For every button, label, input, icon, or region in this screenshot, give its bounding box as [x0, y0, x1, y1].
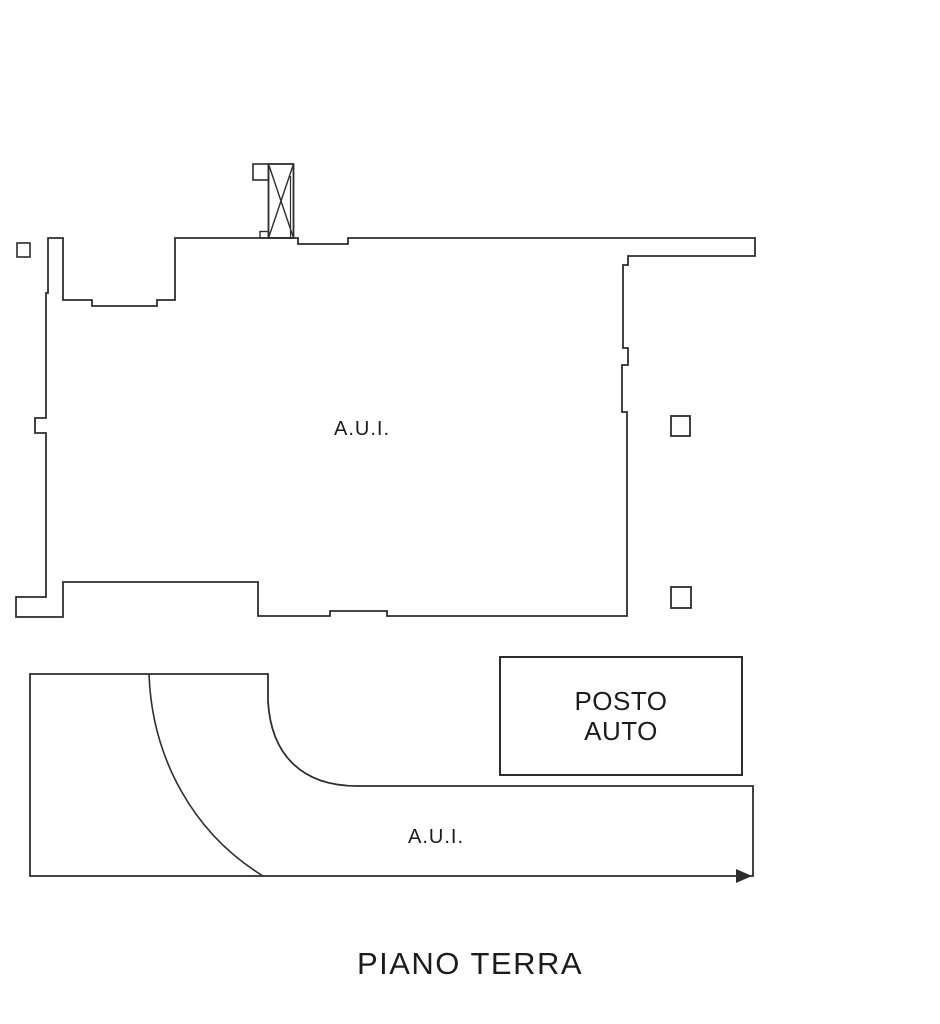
shaft-cross-mark-icon	[269, 164, 294, 238]
floor-plan-page: A.U.I. A.U.I. POSTO AUTO PIANO TERRA	[0, 0, 940, 1024]
floor-plan-drawing	[0, 0, 940, 1024]
pillar-square-right-lower	[671, 587, 691, 608]
shaft-side-box	[253, 164, 269, 180]
ramp-curve	[149, 674, 263, 876]
parking-label-line1: POSTO	[574, 686, 667, 716]
pillar-square-right-upper	[671, 416, 690, 436]
parking-space-label: POSTO AUTO	[500, 657, 742, 775]
shaft-wall-step	[260, 232, 269, 239]
lower-unit-label: A.U.I.	[403, 826, 469, 849]
upper-unit-label: A.U.I.	[329, 418, 395, 441]
direction-arrow-icon	[736, 869, 752, 883]
floor-title: PIANO TERRA	[0, 946, 940, 982]
pillar-square-top-left	[17, 243, 30, 257]
parking-label-line2: AUTO	[584, 716, 658, 746]
